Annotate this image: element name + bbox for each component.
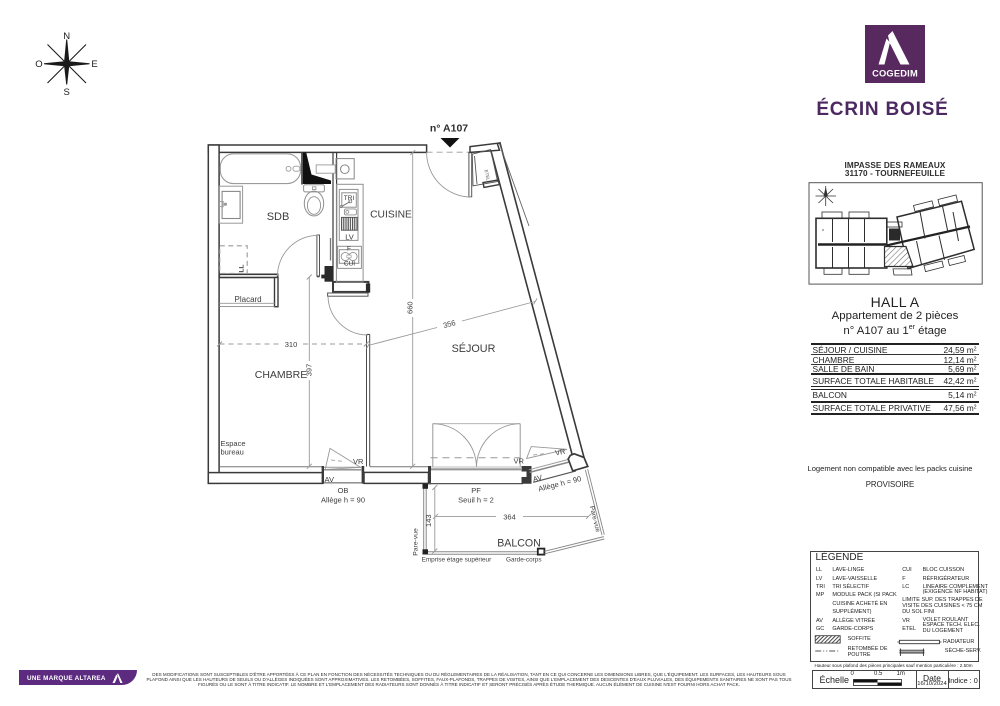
- svg-text:VR: VR: [554, 447, 566, 458]
- svg-text:Seuil h = 2: Seuil h = 2: [458, 496, 494, 505]
- svg-text:364: 364: [503, 512, 516, 521]
- svg-text:Placard: Placard: [235, 295, 262, 304]
- svg-text:Allège h = 90: Allège h = 90: [537, 474, 582, 493]
- svg-text:F: F: [347, 245, 351, 252]
- svg-text:OB: OB: [338, 486, 349, 495]
- svg-text:PF: PF: [471, 486, 481, 495]
- svg-text:AV: AV: [532, 473, 543, 484]
- svg-text:CUI: CUI: [344, 260, 355, 267]
- svg-text:bureau: bureau: [221, 448, 244, 457]
- svg-text:660: 660: [406, 301, 415, 314]
- svg-text:310: 310: [285, 340, 298, 349]
- svg-text:ETEL: ETEL: [484, 169, 491, 182]
- svg-text:COGEDIM: COGEDIM: [872, 69, 918, 79]
- svg-text:Allège h = 90: Allège h = 90: [321, 496, 365, 505]
- svg-text:BALCON: BALCON: [497, 538, 541, 550]
- svg-text:E: E: [91, 59, 97, 70]
- svg-text:SDB: SDB: [267, 211, 290, 223]
- svg-text:SÉJOUR: SÉJOUR: [452, 342, 496, 355]
- svg-text:VR: VR: [514, 457, 525, 466]
- svg-text:O: O: [35, 59, 42, 70]
- svg-text:CUISINE: CUISINE: [370, 210, 412, 221]
- svg-text:356: 356: [442, 318, 456, 330]
- svg-text:n° A107: n° A107: [430, 123, 468, 135]
- svg-text:Pare-vue: Pare-vue: [413, 528, 420, 556]
- svg-text:CHAMBRE: CHAMBRE: [255, 369, 308, 381]
- svg-text:Pare-vue: Pare-vue: [588, 505, 601, 533]
- svg-text:Garde-corps: Garde-corps: [506, 557, 542, 564]
- svg-text:Emprise étage supérieur: Emprise étage supérieur: [422, 557, 492, 564]
- svg-text:LV: LV: [345, 233, 354, 242]
- svg-text:397: 397: [305, 364, 314, 377]
- svg-text:LL: LL: [239, 265, 246, 273]
- svg-text:VR: VR: [353, 457, 364, 466]
- svg-text:143: 143: [424, 514, 433, 527]
- svg-text:N: N: [63, 31, 70, 42]
- svg-text:AV: AV: [325, 475, 334, 484]
- svg-text:S: S: [64, 87, 70, 98]
